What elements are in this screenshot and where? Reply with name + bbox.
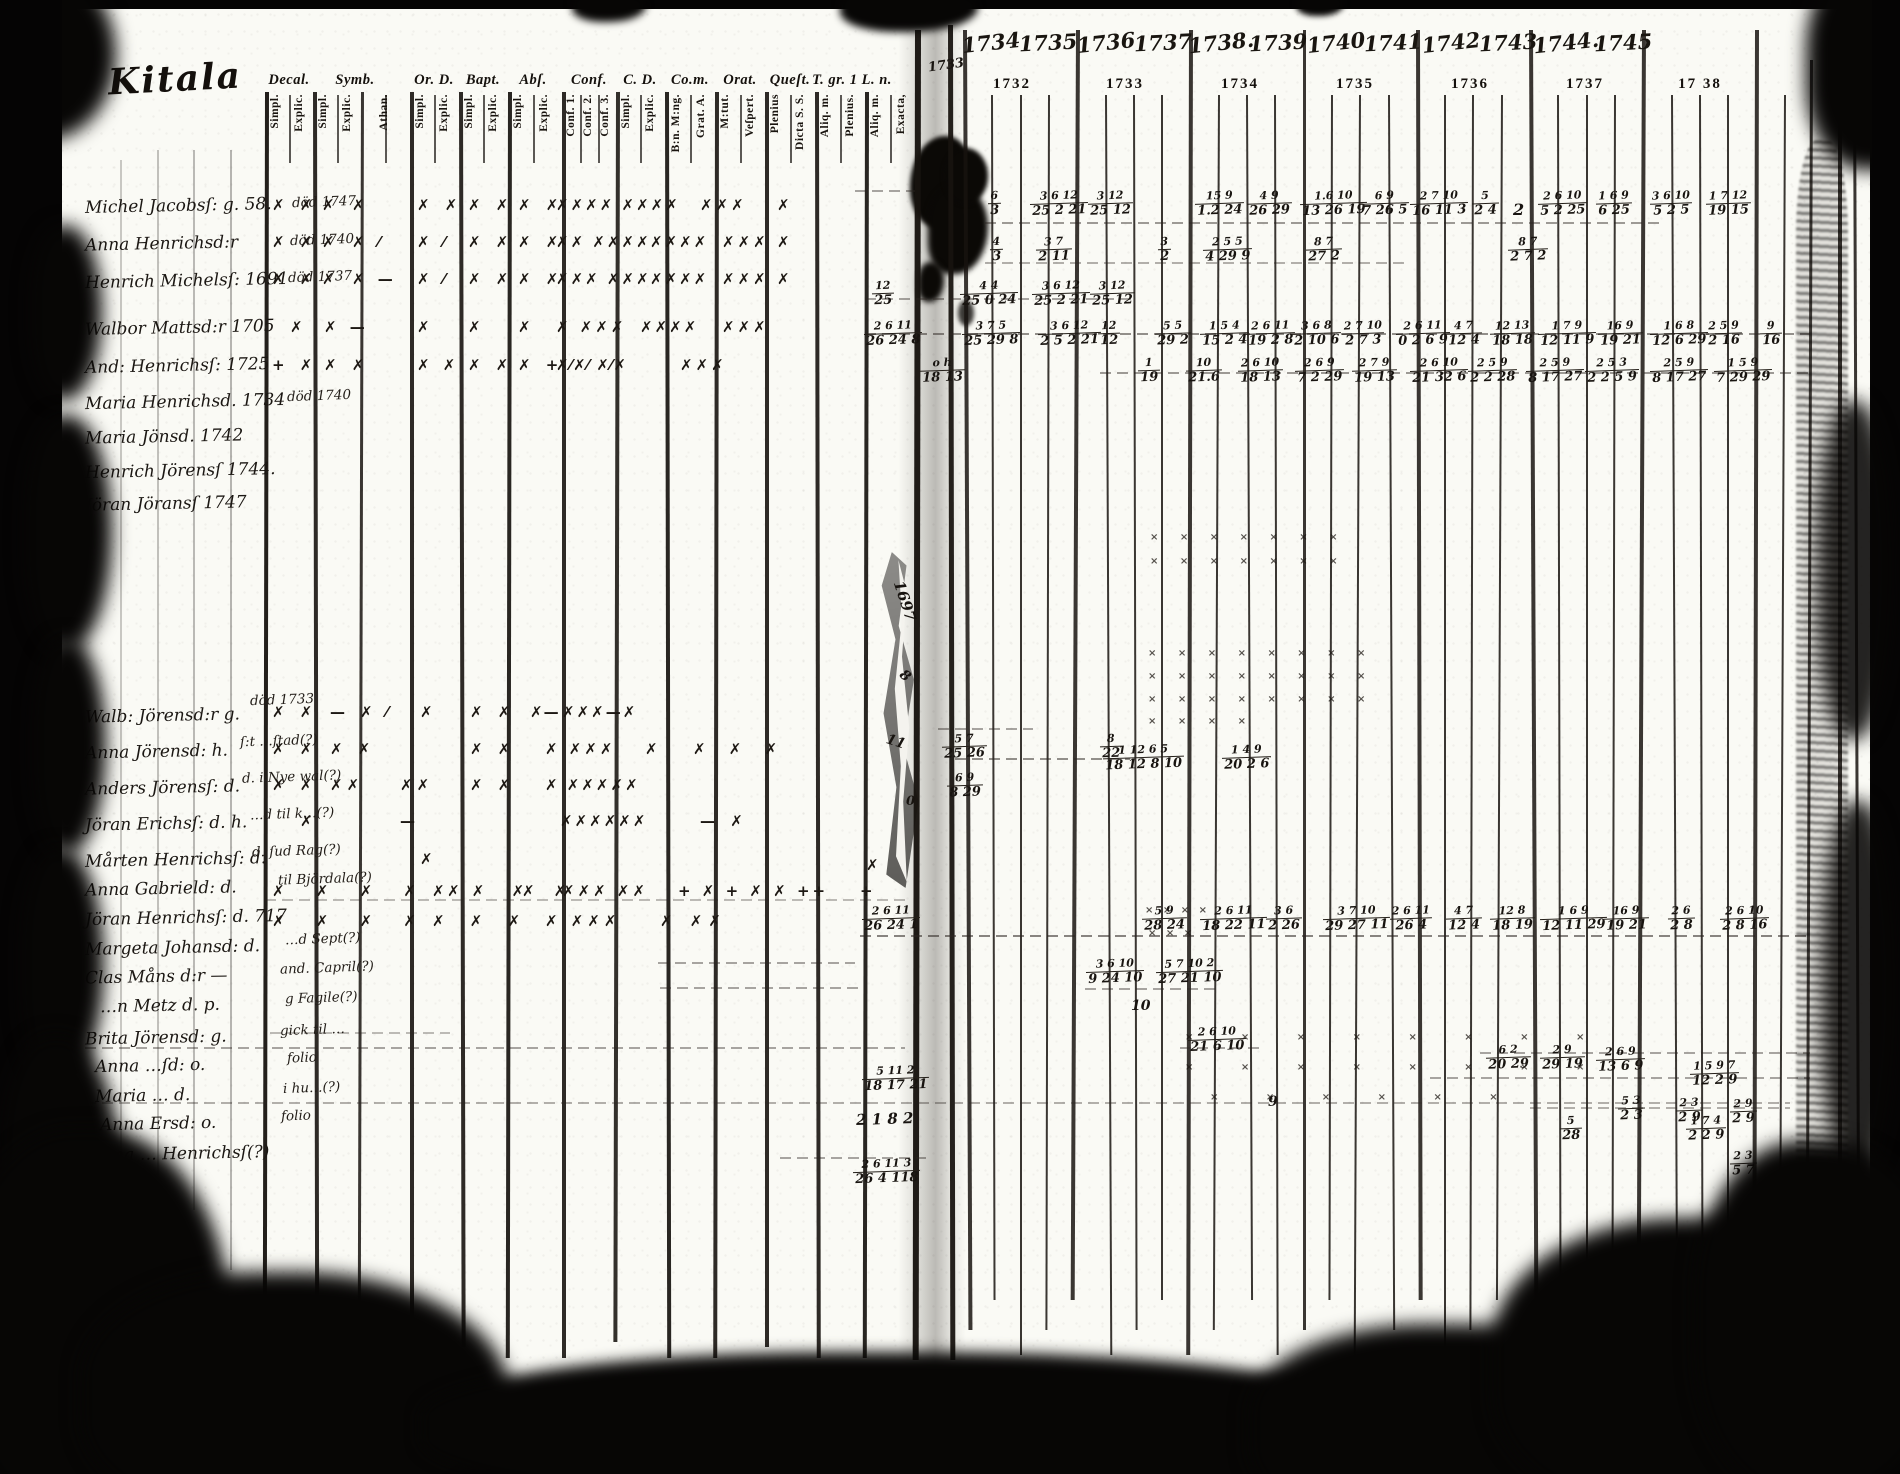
grid-line bbox=[1557, 95, 1562, 1330]
date-days: 2 6 bbox=[1668, 905, 1695, 919]
date-entry: 1 6 912 11 29 bbox=[1540, 904, 1608, 935]
date-months: 2 16 bbox=[1706, 332, 1742, 349]
margin-note: folio bbox=[281, 1107, 311, 1124]
date-days: 4 7 bbox=[1446, 319, 1482, 333]
date-months: 29 2 bbox=[1155, 332, 1191, 349]
date-months: 25 29 8 bbox=[962, 332, 1021, 350]
attendance-marks: ✗ ✗ ✗ bbox=[693, 740, 786, 758]
attendance-marks: ✗ ✗ bbox=[468, 356, 513, 374]
column-sub-header: Conf. 3. bbox=[600, 94, 612, 137]
date-entry: 3 7 1029 27 11 bbox=[1323, 904, 1391, 935]
date-days: 1 5 9 7 bbox=[1690, 1059, 1740, 1073]
date-entry: o h18 13 bbox=[920, 356, 966, 386]
date-months: 2 8 16 bbox=[1720, 917, 1770, 935]
date-days: 6 bbox=[988, 190, 1001, 203]
grid-line bbox=[1213, 95, 1220, 1330]
date-days: 2 6 10 bbox=[1238, 356, 1283, 370]
attendance-marks: × × × × bbox=[1148, 716, 1255, 727]
attendance-marks: ✗ ✗ bbox=[272, 270, 317, 288]
column-sub-header: Simpl. bbox=[621, 94, 633, 129]
column-group-header: Or. D. bbox=[414, 72, 454, 89]
year-handwritten: 1739 bbox=[1248, 28, 1308, 56]
column-group-header: Abſ. bbox=[519, 72, 546, 89]
date-entry: 4 712 4 bbox=[1446, 904, 1483, 934]
date-months: 29 27 11 bbox=[1323, 916, 1391, 934]
date-entry: 15 91.2 24 bbox=[1195, 189, 1245, 219]
row-line bbox=[85, 1047, 905, 1049]
date-days: 4 bbox=[990, 236, 1003, 249]
date-days: 2 3 bbox=[1676, 1097, 1703, 1111]
date-entry: 1 7 912 11 9 bbox=[1538, 319, 1597, 350]
name-entry: Anders Jörensſ: d. bbox=[85, 776, 240, 799]
grid-line bbox=[640, 95, 642, 163]
grid-line bbox=[840, 95, 842, 163]
name-entry: Henrich Jörensſ 1744. bbox=[85, 459, 276, 483]
year-handwritten: 1744. bbox=[1532, 27, 1600, 59]
date-entry: 3 6 105 2 5 bbox=[1650, 189, 1693, 219]
date-months: 12 2 9 bbox=[1690, 1072, 1740, 1090]
column-sub-header: Conf. 2. bbox=[583, 94, 595, 137]
date-entry: 2 7 1016 11 3 bbox=[1410, 189, 1469, 220]
date-months: 26 24 1 bbox=[862, 917, 921, 935]
date-months: 2 2 5 9 bbox=[1585, 369, 1639, 387]
attendance-marks: ✗ bbox=[322, 196, 335, 214]
year-handwritten: 1734 bbox=[961, 27, 1022, 58]
attendance-marks: ✗ bbox=[290, 318, 303, 336]
column-sub-header: Plenius bbox=[770, 94, 782, 133]
name-entry: Brita Jörensd: g. bbox=[85, 1027, 227, 1050]
margin-note: i hu…(?) bbox=[283, 1079, 341, 1097]
attendance-marks: ✗ ✗✗✗✗✗ bbox=[545, 776, 640, 794]
date-days: 9 bbox=[1760, 320, 1783, 333]
margin-note: d. ſud Rag(?) bbox=[252, 841, 341, 860]
column-sub-header: Explic. bbox=[645, 94, 657, 132]
name-entry: Walb: Jörensd:r g. bbox=[85, 704, 240, 727]
date-months: 29 19 bbox=[1540, 1056, 1585, 1073]
date-days: 12 13 bbox=[1490, 319, 1535, 333]
grid-line bbox=[434, 95, 436, 163]
date-months: 19 21 bbox=[1598, 332, 1643, 349]
date-months: 26 4 bbox=[1390, 917, 1433, 934]
attendance-marks: + ✗ + ✗ ✗ ++ bbox=[678, 882, 828, 900]
date-entry: 3 1225 12 bbox=[1088, 189, 1134, 219]
grid-line bbox=[410, 92, 414, 1358]
grid-line bbox=[337, 95, 339, 163]
date-months: 16 11 3 bbox=[1410, 202, 1469, 220]
column-sub-header: Explic. bbox=[342, 94, 354, 132]
name-entry: Henrich Michelsſ: 1691 bbox=[85, 269, 289, 293]
date-entry: 6 98 29 bbox=[947, 771, 984, 801]
column-sub-header: B:n. M:ng. bbox=[671, 94, 683, 152]
attendance-marks: ✗ ✗ bbox=[470, 703, 515, 721]
attendance-marks: ✗ ✗ ✗ bbox=[432, 882, 535, 900]
attendance-marks: ✗✗✗✗✗✗ bbox=[560, 812, 647, 830]
date-entry: 3 72 11 bbox=[1036, 235, 1073, 265]
year-handwritten: 1736 bbox=[1076, 27, 1137, 58]
attendance-marks: ✗✗✗—✗ bbox=[562, 703, 637, 721]
attendance-marks: ✗ ✗ bbox=[330, 740, 375, 758]
date-entry: 5 725 26 bbox=[942, 732, 988, 762]
attendance-marks: × × × × × × × bbox=[1150, 532, 1347, 543]
attendance-marks: ✗✗✗✗ bbox=[650, 233, 708, 251]
grid-line bbox=[740, 95, 742, 163]
date-entry: 2 6 1126 24 8 bbox=[864, 319, 923, 350]
grid-line bbox=[1611, 95, 1616, 1355]
column-sub-header: Simpl. bbox=[270, 94, 282, 129]
column-group-header: C. D. bbox=[623, 72, 657, 89]
row-line bbox=[85, 1102, 1790, 1104]
attendance-marks: ✗ bbox=[352, 196, 365, 214]
date-months: 21.6 bbox=[1186, 369, 1222, 386]
row-line bbox=[985, 222, 1660, 224]
grid-line bbox=[1470, 95, 1475, 1330]
scan-edge-blob bbox=[1694, 1140, 1900, 1474]
column-group-header: T. gr. 1 L. n. bbox=[812, 72, 892, 89]
date-months: 20 29 bbox=[1486, 1056, 1531, 1073]
date-entry: 32 bbox=[1158, 236, 1172, 265]
date-months: 3 bbox=[990, 248, 1004, 264]
attendance-marks: ✗ ✗✗✗ bbox=[545, 740, 616, 758]
column-sub-header: Simpl. bbox=[513, 94, 525, 129]
attendance-marks: ✗— bbox=[530, 703, 560, 721]
attendance-marks: ✗✗✗ bbox=[722, 270, 769, 288]
row-line bbox=[855, 190, 915, 192]
date-months: 13 26 19 bbox=[1300, 201, 1368, 219]
margin-note: and. Capril(?) bbox=[280, 958, 374, 977]
date-entry: 2 929 19 bbox=[1540, 1043, 1586, 1073]
grid-line bbox=[1586, 95, 1588, 1300]
grid-line bbox=[1699, 95, 1704, 1355]
date-months: 16 bbox=[1760, 332, 1783, 349]
date-days: 8 7 bbox=[1306, 235, 1342, 249]
date-entry: 63 bbox=[988, 190, 1002, 219]
date-entry: 2 5 92 2 28 bbox=[1468, 356, 1518, 386]
row-line bbox=[660, 987, 858, 989]
name-entry: Anna Gabrield: d. bbox=[85, 877, 237, 900]
attendance-marks: ✗✗ bbox=[330, 776, 363, 794]
attendance-marks: × × × × × × × × bbox=[1148, 671, 1374, 682]
name-entry: Jöran Erichsſ: d. h. bbox=[85, 812, 248, 835]
date-months: 0 2 6 9 bbox=[1396, 332, 1450, 350]
date-months: 25 2 21 bbox=[1030, 202, 1089, 220]
date-days: 1 6 9 bbox=[1596, 189, 1632, 203]
year-printed: 17 38 bbox=[1678, 76, 1722, 93]
date-entry: 1 4 920 2 6 bbox=[1222, 743, 1272, 773]
margin-note: g Fagile(?) bbox=[285, 989, 358, 1008]
scan-edge-blob bbox=[30, 225, 102, 400]
date-days: 3 6 bbox=[1266, 904, 1302, 918]
date-days: 1 7 12 bbox=[1706, 189, 1751, 203]
grid-line bbox=[483, 95, 485, 163]
column-sub-header: Simpl. bbox=[464, 94, 476, 129]
date-months: 25 2 21 bbox=[1032, 292, 1091, 310]
date-entry: 3 7 525 29 8 bbox=[962, 319, 1021, 350]
attendance-marks: ✗ bbox=[417, 318, 430, 336]
margin-note: folio bbox=[287, 1049, 317, 1066]
year-handwritten: 1735 bbox=[1018, 28, 1078, 56]
date-entry: 1 5 415 2 4 bbox=[1200, 319, 1250, 349]
date-entry: 4 425 0 24 bbox=[960, 279, 1019, 310]
document-scan: Kitala Decal.Symb.Or. D.Bapt.Abſ.Conf.C.… bbox=[0, 0, 1900, 1474]
name-entry: Jöran Henrichsſ: d. 717 bbox=[85, 906, 287, 930]
date-days: 1 7 4 bbox=[1686, 1114, 1727, 1128]
date-days: 5 bbox=[1560, 1115, 1583, 1128]
year-handwritten: 1741 bbox=[1363, 28, 1423, 56]
attendance-marks: ✗ ✗ bbox=[272, 233, 317, 251]
date-days: 3 7 bbox=[1036, 235, 1072, 249]
attendance-marks: ✗ ✗ bbox=[417, 356, 459, 374]
attendance-marks: — bbox=[400, 812, 415, 830]
date-entry: 2 6 102 8 16 bbox=[1720, 904, 1770, 934]
attendance-marks: ✗ bbox=[777, 196, 790, 214]
column-sub-header: Aliq. m. bbox=[820, 94, 832, 137]
date-entry: 119 bbox=[1138, 357, 1161, 386]
date-entry: 2 5 32 2 5 9 bbox=[1585, 356, 1640, 386]
column-sub-header: Simpl. bbox=[318, 94, 330, 129]
date-months: 25 12 bbox=[1090, 292, 1135, 309]
grid-line bbox=[815, 92, 821, 1358]
grid-line bbox=[1727, 95, 1729, 1330]
attendance-marks: ✗ ✗ bbox=[468, 196, 513, 214]
grid-line bbox=[533, 95, 535, 163]
column-group-header: Symb. bbox=[335, 72, 374, 89]
attendance-marks: — bbox=[330, 703, 345, 721]
date-entry: 1.6 1013 26 19 bbox=[1300, 189, 1368, 220]
date-days: 2 6 10 bbox=[1720, 904, 1770, 918]
date-entry: 1 6 96 25 bbox=[1596, 189, 1633, 219]
date-months: 18 13 bbox=[920, 369, 965, 386]
date-entry: 52 4 bbox=[1472, 190, 1500, 219]
name-entry: Maria Henrichsd. 1734 bbox=[85, 390, 286, 414]
date-entry: 5 11 218 17 21 bbox=[862, 1064, 930, 1095]
date-days: 2 7 10 bbox=[1342, 319, 1385, 333]
date-entry: 12 1318 18 bbox=[1490, 319, 1536, 349]
date-entry: 5 7 10 227 21 10 bbox=[1156, 957, 1224, 988]
grid-line bbox=[1071, 30, 1080, 1300]
column-sub-header: Simpl. bbox=[415, 94, 427, 129]
attendance-marks: ✗ bbox=[518, 318, 531, 336]
scan-edge-blob bbox=[32, 638, 106, 853]
date-months: 19 15 bbox=[1706, 202, 1751, 219]
date-entry: 4 712 4 bbox=[1446, 319, 1483, 349]
year-handwritten: 1743 bbox=[1478, 28, 1538, 56]
grid-line bbox=[1274, 95, 1279, 1355]
row-line bbox=[1085, 988, 1215, 990]
name-entry: Mårten Henrichsſ: d. bbox=[85, 848, 267, 872]
year-handwritten: 1737 bbox=[1133, 28, 1193, 56]
date-days: 3 bbox=[1158, 236, 1171, 249]
attendance-marks: ✗ ⁄ bbox=[352, 233, 384, 251]
date-months: 26 4 118 bbox=[853, 1169, 921, 1187]
date-months: 27 2 bbox=[1306, 248, 1342, 265]
date-months: 27 21 10 bbox=[1156, 969, 1224, 987]
attendance-marks: × × × × × × bbox=[1210, 1092, 1520, 1103]
attendance-marks: ✗✗✗ bbox=[722, 318, 769, 336]
date-months: 25 bbox=[872, 292, 895, 309]
attendance-marks: + bbox=[860, 882, 873, 900]
date-entry: 2 62 8 bbox=[1668, 905, 1696, 934]
date-months: 26 24 8 bbox=[864, 332, 923, 350]
column-sub-header: Explic. bbox=[488, 94, 500, 132]
date-entry: 3 6 1225 2 21 bbox=[1030, 189, 1089, 220]
date-entry: 3 6 122 5 2 21 bbox=[1038, 319, 1102, 350]
date-entry: 8 72 7 2 bbox=[1508, 235, 1549, 265]
date-days: 2 5 9 bbox=[1706, 319, 1742, 333]
attendance-marks: ✗ ✗ bbox=[468, 270, 513, 288]
year-printed: 1733 bbox=[1106, 76, 1144, 93]
name-entry: And: Henrichsſ: 1725 bbox=[85, 354, 270, 378]
date-entry: 2 6 1018 13 bbox=[1238, 356, 1284, 386]
date-entry: 916 bbox=[1760, 320, 1783, 349]
name-entry: Margeta Johansd: d. bbox=[85, 936, 260, 960]
column-sub-header: Explic. bbox=[294, 94, 306, 132]
column-sub-header: Explic. bbox=[539, 94, 551, 132]
date-months: 2 2 9 bbox=[1686, 1127, 1727, 1144]
column-sub-header: Aliq. m. bbox=[870, 94, 882, 137]
date-days: 4 7 bbox=[1446, 904, 1482, 918]
column-group-header: Queſt. bbox=[770, 72, 810, 89]
attendance-marks: ✗ ✗ bbox=[272, 740, 317, 758]
date-months: 19 bbox=[1138, 369, 1161, 386]
date-entry: 2 6 1021 32 6 bbox=[1410, 356, 1469, 387]
date-entry: 2 92 9 bbox=[1730, 1098, 1758, 1127]
name-entry: Clas Måns d:r — bbox=[85, 966, 228, 989]
attendance-marks: ✗ — bbox=[324, 318, 369, 336]
attendance-marks: ✗✗✗ ✗✗✗ bbox=[556, 270, 651, 288]
date-entry: 1225 bbox=[872, 280, 895, 309]
attendance-marks: ✗ ⁄ bbox=[417, 233, 449, 251]
date-days: 2 6 11 bbox=[1390, 904, 1433, 918]
date-days: 2 6 10 bbox=[1538, 189, 1588, 203]
date-months: 7 26 5 bbox=[1360, 202, 1410, 220]
attendance-marks: × × × × × × × × bbox=[1148, 648, 1374, 659]
attendance-marks: ✗ — bbox=[352, 270, 397, 288]
grid-line bbox=[459, 92, 466, 1347]
attendance-marks: ✗ ✗✗ bbox=[660, 912, 727, 930]
column-group-header: Conf. bbox=[571, 72, 607, 89]
date-days: 2 6 11 bbox=[1246, 319, 1296, 333]
date-entry: 1 12 6 518 12 8 10 bbox=[1103, 743, 1185, 774]
date-months: 15 2 4 bbox=[1200, 332, 1250, 350]
margin-note: …d Sept(?) bbox=[285, 930, 361, 949]
date-entry: 3 62 26 bbox=[1266, 904, 1303, 934]
grid-line bbox=[1354, 95, 1361, 1355]
stray-number: 9 bbox=[1268, 1094, 1278, 1110]
year-printed: 1737 bbox=[1566, 76, 1604, 93]
attendance-marks: ✗ bbox=[322, 270, 335, 288]
attendance-marks: ✗ ⁄ bbox=[417, 270, 449, 288]
attendance-marks: ✗ ✗ bbox=[272, 196, 317, 214]
date-days: 12 bbox=[1098, 320, 1121, 333]
date-months: 3 bbox=[988, 202, 1002, 218]
attendance-marks: ✗ bbox=[420, 850, 433, 868]
date-entry: 528 bbox=[1560, 1115, 1583, 1144]
attendance-marks: ✗✗✗ bbox=[722, 233, 769, 251]
grid-line bbox=[713, 92, 719, 1358]
date-entry: 1021.6 bbox=[1186, 356, 1223, 386]
date-months: 19 2 8 bbox=[1246, 332, 1296, 350]
attendance-marks: ✗ ✗ bbox=[470, 740, 515, 758]
date-entry: 3 1225 12 bbox=[1090, 279, 1136, 309]
attendance-marks: ✗✗✗✗ bbox=[640, 318, 698, 336]
grid-line bbox=[790, 95, 792, 163]
date-months: 18 13 bbox=[1238, 369, 1283, 386]
attendance-marks: ✗ bbox=[866, 856, 879, 874]
date-months: 8 17 27 bbox=[1526, 369, 1585, 387]
row-line bbox=[860, 935, 1810, 937]
date-entry: 5 529 2 bbox=[1155, 319, 1192, 349]
date-months: 8 29 bbox=[947, 784, 983, 801]
column-group-header: Co.m. bbox=[671, 72, 709, 89]
date-entry: 1212 bbox=[1098, 320, 1121, 349]
attendance-marks: ✗ ✗ ✗ ✗ bbox=[272, 912, 429, 930]
date-months: 25 12 bbox=[1088, 202, 1133, 219]
date-months: 2 7 2 bbox=[1508, 248, 1549, 265]
date-months: 2 2 28 bbox=[1468, 369, 1518, 387]
date-entry: 5 928 24 bbox=[1142, 904, 1188, 934]
date-months: 5 2 25 bbox=[1538, 202, 1588, 220]
date-months: 2 8 bbox=[1668, 917, 1695, 934]
date-days: 2 9 bbox=[1730, 1098, 1757, 1112]
grid-line bbox=[1637, 30, 1646, 1330]
attendance-marks: ✗ ✗ bbox=[324, 356, 369, 374]
date-months: 7 29 29 bbox=[1714, 369, 1773, 387]
date-months: 2 bbox=[1158, 248, 1172, 264]
attendance-marks: × × × × × × × × bbox=[1185, 1032, 1606, 1043]
attendance-marks: ✗ bbox=[777, 233, 790, 251]
attendance-marks: ✗ bbox=[300, 812, 313, 830]
date-entry: 2 6 1126 4 bbox=[1390, 904, 1433, 934]
grid-line bbox=[1496, 95, 1503, 1300]
date-entry: 2 6 1021 6 10 bbox=[1188, 1025, 1247, 1056]
date-months: 12 4 bbox=[1446, 332, 1482, 349]
name-entry: Anna …ſd: o. bbox=[95, 1055, 206, 1077]
date-months: 8 17 27 bbox=[1650, 369, 1709, 387]
date-days: 1 bbox=[1138, 357, 1161, 370]
row-line bbox=[1430, 1077, 1810, 1079]
attendance-marks: ✗✗✗✗ bbox=[650, 270, 708, 288]
date-months: 21 32 6 bbox=[1410, 369, 1469, 387]
column-sub-header: Plenius. bbox=[845, 94, 857, 137]
attendance-marks: ✗ ✗ ✗ bbox=[432, 912, 530, 930]
attendance-marks: ✗ ⁄ bbox=[360, 703, 392, 721]
date-months: 25 26 bbox=[942, 745, 987, 762]
attendance-marks: ✗ ✗ bbox=[272, 776, 317, 794]
date-months: 18 17 21 bbox=[862, 1076, 930, 1094]
date-entry: 1 7 1219 15 bbox=[1706, 189, 1752, 219]
date-months: 2 10 6 bbox=[1292, 332, 1342, 350]
grid-line bbox=[1416, 30, 1422, 1300]
date-months: 19 21 bbox=[1604, 917, 1649, 934]
year-printed: 1734 bbox=[1221, 76, 1259, 93]
stray-number: 8 bbox=[896, 667, 914, 686]
date-days: 2 7 9 bbox=[1352, 356, 1397, 370]
attendance-marks: ✗ ✗ bbox=[470, 776, 515, 794]
margin-note: död 1740 bbox=[287, 387, 352, 405]
date-entry: 2 5 92 16 bbox=[1706, 319, 1743, 349]
grid-line bbox=[1444, 95, 1446, 1355]
date-entry: 2 5 98 17 27 bbox=[1650, 356, 1709, 387]
attendance-marks: ✗✗✗ ✗✗ bbox=[562, 882, 648, 900]
date-months: 28 24 bbox=[1142, 917, 1187, 934]
date-entry: 2 5 98 17 27 bbox=[1526, 356, 1585, 387]
attendance-marks: ✗ bbox=[777, 270, 790, 288]
name-entry: Anna Henrichsd:r bbox=[85, 232, 238, 255]
column-sub-header: Explic. bbox=[439, 94, 451, 132]
attendance-marks: ✗ bbox=[322, 233, 335, 251]
date-entry: 2 6 1118 22 11 bbox=[1200, 904, 1268, 935]
year-handwritten: 1740 bbox=[1306, 27, 1367, 58]
